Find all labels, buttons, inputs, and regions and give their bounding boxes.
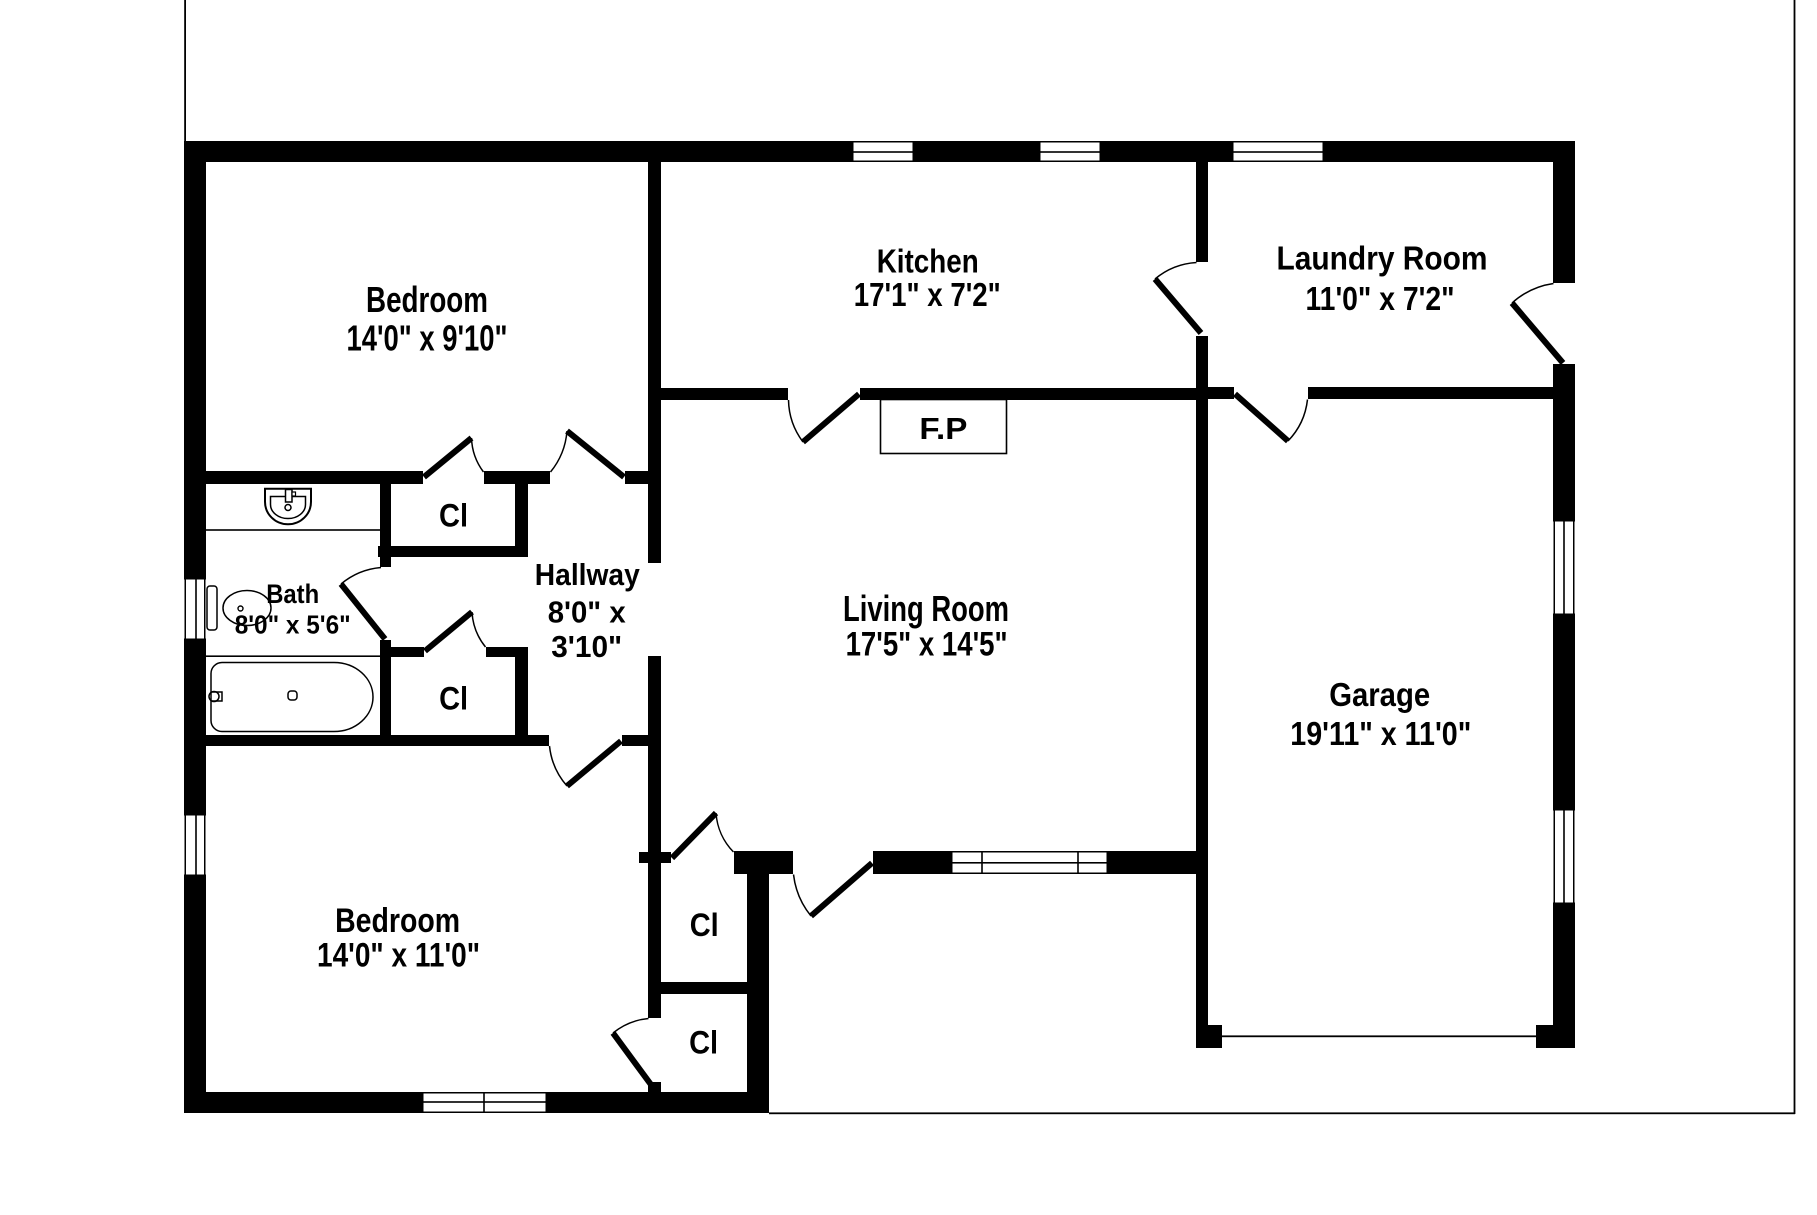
svg-text:F.P: F.P (919, 411, 967, 446)
svg-text:Cl: Cl (439, 498, 468, 534)
svg-text:Laundry Room: Laundry Room (1277, 240, 1488, 277)
svg-text:Cl: Cl (690, 907, 719, 943)
svg-text:Hallway: Hallway (535, 557, 641, 592)
svg-text:8'0" x 5'6": 8'0" x 5'6" (235, 610, 351, 640)
svg-text:17'5" x 14'5": 17'5" x 14'5" (846, 626, 1008, 664)
svg-text:8'0" x: 8'0" x (548, 594, 627, 629)
svg-text:17'1" x 7'2": 17'1" x 7'2" (854, 276, 1001, 313)
svg-text:3'10": 3'10" (551, 629, 622, 664)
svg-text:Bedroom: Bedroom (335, 902, 460, 940)
svg-text:Cl: Cl (689, 1025, 718, 1061)
svg-text:11'0" x 7'2": 11'0" x 7'2" (1306, 280, 1455, 317)
svg-text:14'0" x 9'10": 14'0" x 9'10" (347, 318, 508, 359)
svg-text:14'0" x 11'0": 14'0" x 11'0" (317, 937, 480, 975)
svg-text:Bedroom: Bedroom (366, 279, 488, 320)
svg-text:Kitchen: Kitchen (877, 243, 979, 280)
svg-text:Living Room: Living Room (843, 588, 1009, 629)
svg-text:Garage: Garage (1329, 676, 1430, 713)
svg-text:Bath: Bath (266, 579, 319, 609)
svg-text:19'11" x 11'0": 19'11" x 11'0" (1290, 715, 1471, 752)
svg-text:Cl: Cl (439, 681, 468, 717)
